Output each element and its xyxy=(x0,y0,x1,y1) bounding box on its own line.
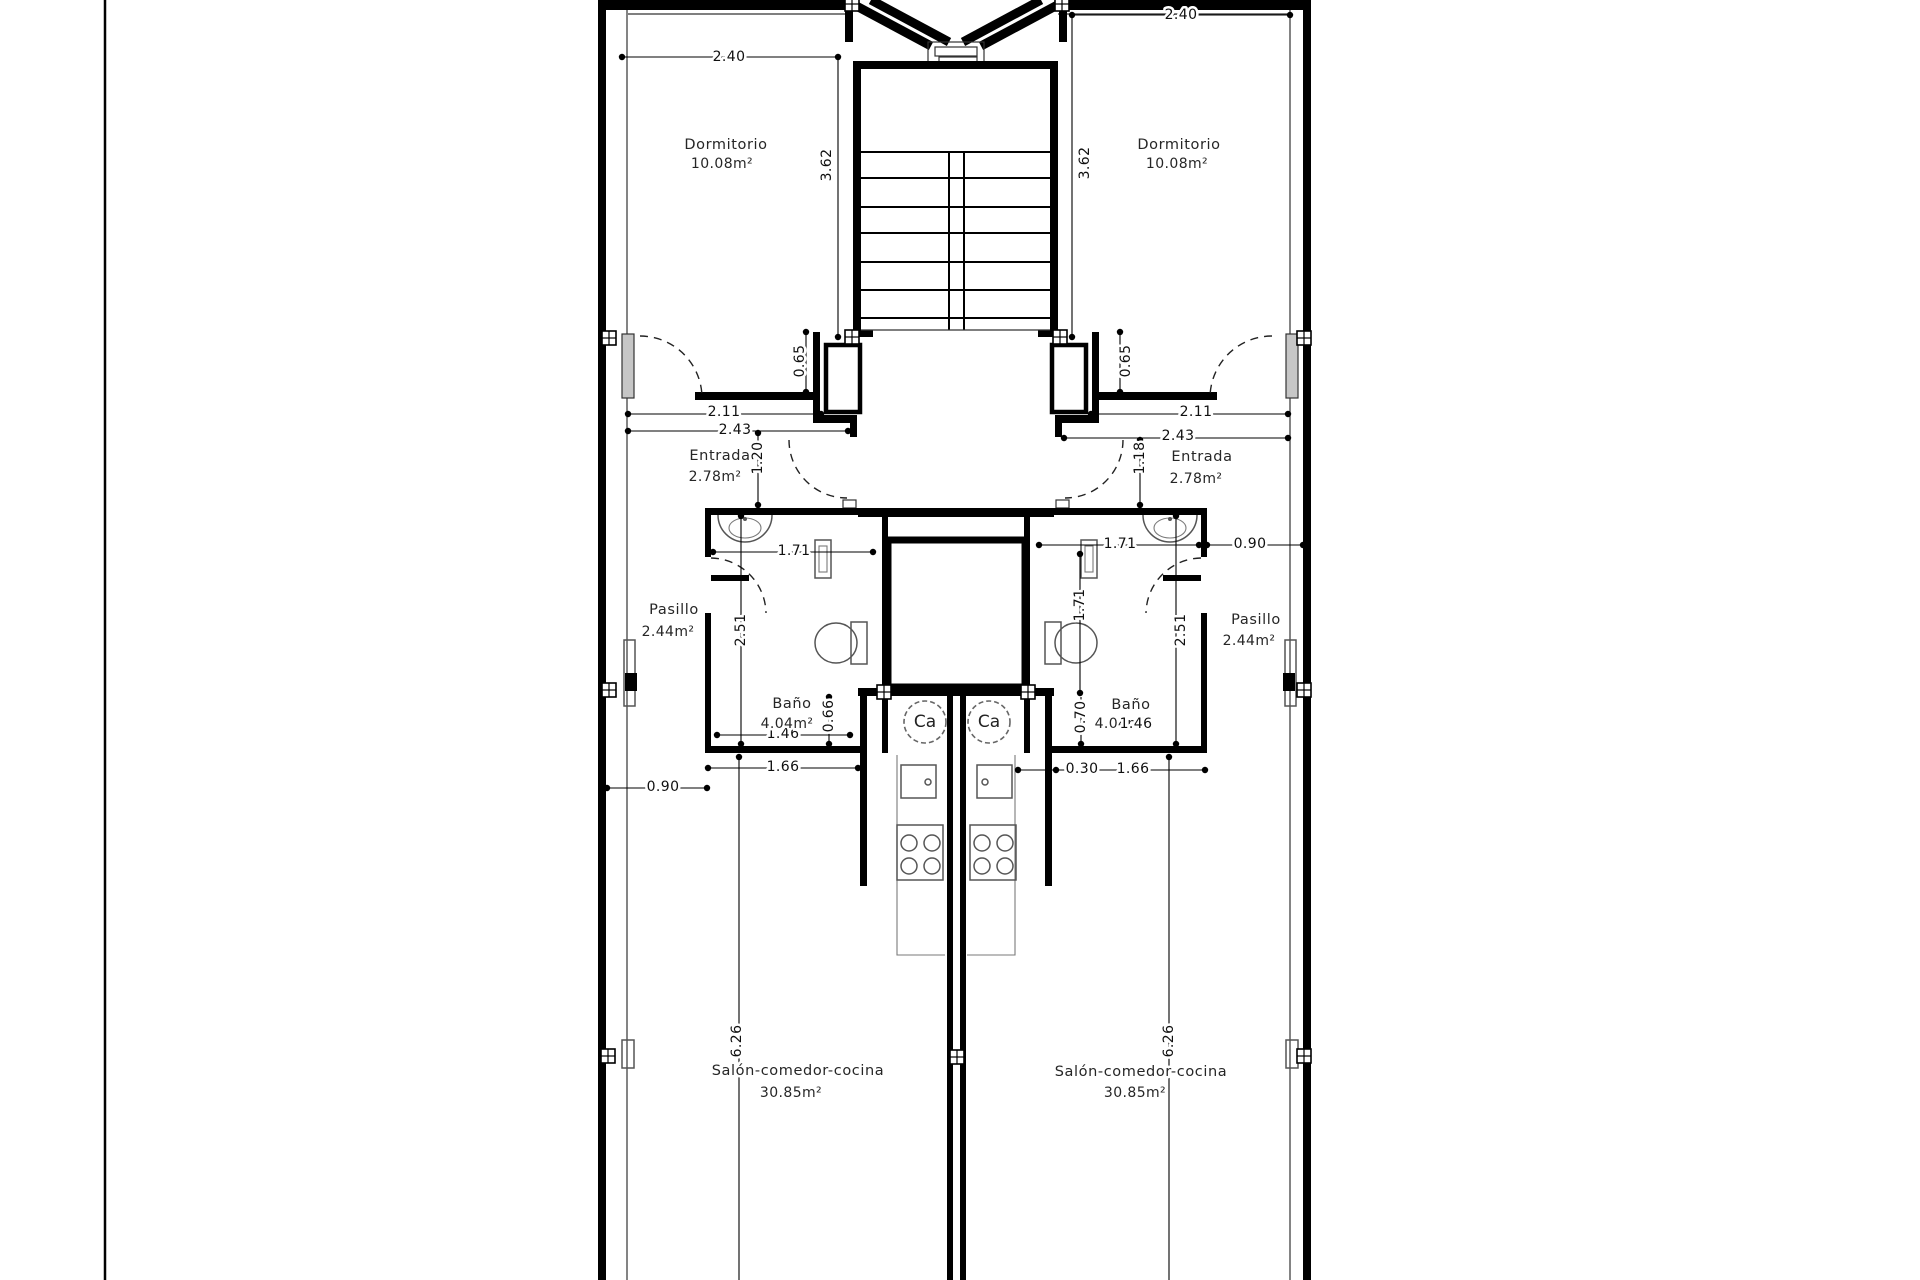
dim-211-right: 2.11 xyxy=(1088,404,1291,420)
stove-right xyxy=(970,825,1016,880)
svg-text:1.18: 1.18 xyxy=(1132,442,1148,475)
stove-left xyxy=(897,825,943,880)
area-bano-left: 4.04m² xyxy=(761,716,814,732)
dim-090-left: 0.90 xyxy=(604,779,710,795)
area-entrada-left: 2.78m² xyxy=(689,469,742,485)
dim-362-right: 3.62 xyxy=(1069,15,1093,340)
svg-text:2.43: 2.43 xyxy=(719,422,752,438)
dim-211-left: 2.11 xyxy=(625,404,824,420)
roof-truss xyxy=(845,0,1067,64)
floor-plan: Ca Ca xyxy=(0,0,1920,1280)
svg-text:1.71: 1.71 xyxy=(1072,589,1088,622)
water-heater-left-label: Ca xyxy=(914,712,936,732)
dim-166-left: 1.66 xyxy=(705,759,861,775)
area-entrada-right: 2.78m² xyxy=(1170,471,1223,487)
dim-171-left-horizontal: 1.71 xyxy=(710,543,876,559)
svg-text:3.62: 3.62 xyxy=(1077,147,1093,180)
svg-text:1.66: 1.66 xyxy=(767,759,800,775)
room-dormitorio-left: Dormitorio xyxy=(684,137,767,153)
dim-171-right-horizontal: 1.71 xyxy=(1036,536,1202,552)
dim-251-right: 2.51 xyxy=(1173,513,1189,747)
duct-closet-right xyxy=(1052,345,1086,412)
svg-text:0.66: 0.66 xyxy=(821,700,837,733)
area-pasillo-left: 2.44m² xyxy=(642,624,695,640)
svg-text:1.66: 1.66 xyxy=(1117,761,1150,777)
area-dormitorio-left: 10.08m² xyxy=(691,156,753,172)
door-leaf-left xyxy=(622,334,634,398)
door-arc-bano-right xyxy=(1146,558,1201,613)
room-bano-left: Baño xyxy=(772,696,811,712)
dim-065-right: 0.65 xyxy=(1117,329,1134,395)
room-entrada-right: Entrada xyxy=(1171,449,1232,465)
room-pasillo-right: Pasillo xyxy=(1231,612,1281,628)
door-arc-entrada-left xyxy=(789,440,847,498)
door-arc-entrada-right xyxy=(1065,440,1123,498)
svg-text:1.20: 1.20 xyxy=(750,442,766,475)
room-salon-right: Salón-comedor-cocina xyxy=(1055,1064,1228,1080)
door-arc-bano-left xyxy=(711,558,766,613)
room-dormitorio-right: Dormitorio xyxy=(1137,137,1220,153)
vestibule-walls xyxy=(695,332,1217,508)
dim-120-left: 1.20 xyxy=(750,430,766,508)
svg-text:0.65: 0.65 xyxy=(1118,345,1134,378)
svg-text:2.43: 2.43 xyxy=(1162,428,1195,444)
dim-626-left: 6.26 xyxy=(729,754,745,1280)
svg-text:0.90: 0.90 xyxy=(1234,536,1267,552)
svg-text:0.65: 0.65 xyxy=(792,345,808,378)
stair-steps xyxy=(861,152,1050,330)
room-bano-right: Baño xyxy=(1111,697,1150,713)
kitchen-core: Ca Ca xyxy=(860,696,1052,1280)
svg-text:2.40: 2.40 xyxy=(1165,7,1198,23)
area-dormitorio-right: 10.08m² xyxy=(1146,156,1208,172)
dim-030-166-right: 0.30 1.66 xyxy=(1015,761,1208,777)
kitchen-sink-left xyxy=(901,765,936,798)
room-pasillo-left: Pasillo xyxy=(649,602,699,618)
floor-plan-svg: Ca Ca xyxy=(0,0,1920,1280)
dim-626-right: 6.26 xyxy=(1161,754,1177,1280)
dim-066-left: 0.66 xyxy=(821,694,837,747)
dim-118-right: 1.18 xyxy=(1132,437,1148,508)
door-arc-dormitorio-left xyxy=(640,336,702,398)
svg-text:0.70: 0.70 xyxy=(1073,701,1089,734)
stairwell xyxy=(853,61,1058,337)
dim-146-right-overlap: 1.46 xyxy=(1120,716,1153,732)
svg-text:0.90: 0.90 xyxy=(647,779,680,795)
svg-text:2.51: 2.51 xyxy=(1173,614,1189,647)
dim-243-left: 2.43 xyxy=(625,422,851,438)
dim-251-left: 2.51 xyxy=(733,513,749,747)
svg-text:2.11: 2.11 xyxy=(1180,404,1213,420)
room-entrada-left: Entrada xyxy=(689,448,750,464)
door-arc-dormitorio-right xyxy=(1210,336,1272,398)
area-salon-left: 30.85m² xyxy=(760,1085,822,1101)
dim-065-left: 0.65 xyxy=(792,329,809,395)
svg-text:2.11: 2.11 xyxy=(708,404,741,420)
dim-243-right: 2.43 xyxy=(1061,428,1291,444)
svg-text:2.40: 2.40 xyxy=(713,49,746,65)
duct-closet-left xyxy=(826,345,860,412)
svg-text:6.26: 6.26 xyxy=(729,1025,745,1058)
area-pasillo-right: 2.44m² xyxy=(1223,633,1276,649)
svg-text:1.71: 1.71 xyxy=(1104,536,1137,552)
dim-090-right: 0.90 xyxy=(1204,536,1306,552)
kitchen-sink-right xyxy=(977,765,1012,798)
dim-362-left: 3.62 xyxy=(819,57,841,340)
svg-text:1.71: 1.71 xyxy=(778,543,811,559)
svg-text:2.51: 2.51 xyxy=(733,614,749,647)
svg-text:3.62: 3.62 xyxy=(819,149,835,182)
svg-text:0.30: 0.30 xyxy=(1066,761,1099,777)
dim-070-right: 0.70 xyxy=(1073,697,1089,747)
room-salon-left: Salón-comedor-cocina xyxy=(712,1063,885,1079)
area-salon-right: 30.85m² xyxy=(1104,1085,1166,1101)
svg-text:6.26: 6.26 xyxy=(1161,1025,1177,1058)
door-leaf-right xyxy=(1286,334,1298,398)
dim-240-left: 2.40 xyxy=(619,49,841,65)
water-heater-right-label: Ca xyxy=(978,712,1000,732)
